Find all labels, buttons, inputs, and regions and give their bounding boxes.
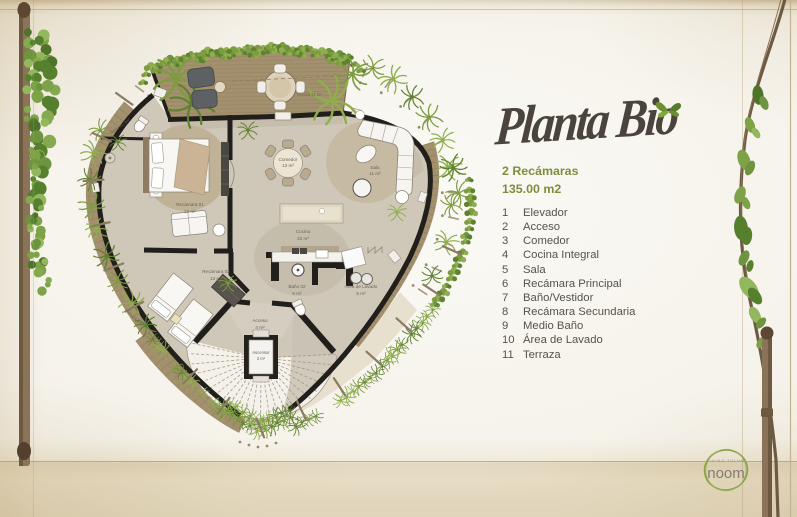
svg-text:Recámara 02: Recámara 02	[202, 269, 230, 274]
svg-text:13 m²: 13 m²	[282, 163, 294, 168]
svg-text:Recámara 01: Recámara 01	[176, 202, 204, 207]
svg-text:Ascensor: Ascensor	[252, 350, 270, 355]
svg-text:6 m²: 6 m²	[292, 291, 302, 296]
svg-text:5 m²: 5 m²	[356, 291, 366, 296]
svg-text:noom: noom	[707, 465, 745, 482]
svg-text:2 m²: 2 m²	[257, 356, 266, 361]
svg-text:22 m²: 22 m²	[297, 236, 309, 241]
svg-text:Acceso: Acceso	[252, 318, 268, 323]
svg-text:Sala: Sala	[370, 165, 380, 170]
svg-text:11 m²: 11 m²	[369, 171, 381, 176]
svg-text:13 m²: 13 m²	[210, 276, 222, 281]
svg-text:24 m²: 24 m²	[184, 209, 196, 214]
svg-text:Comedor: Comedor	[279, 157, 298, 162]
svg-text:LIVING TULUM: LIVING TULUM	[707, 459, 745, 463]
svg-text:Cocina: Cocina	[296, 229, 311, 234]
svg-text:Terraza 11 m²: Terraza 11 m²	[296, 92, 322, 97]
svg-text:4 m²: 4 m²	[255, 325, 265, 330]
svg-text:Baño 02: Baño 02	[288, 284, 306, 289]
svg-text:Área de Lavado: Área de Lavado	[345, 283, 378, 289]
